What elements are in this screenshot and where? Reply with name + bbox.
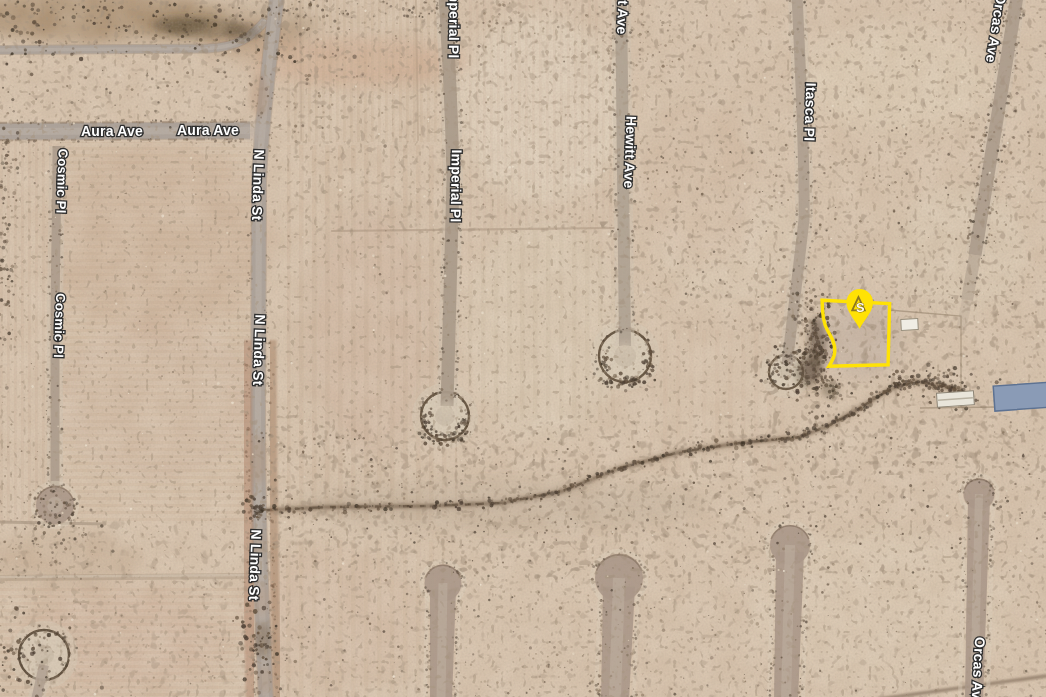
- svg-text:Aura Ave: Aura Ave: [81, 123, 143, 139]
- svg-text:Cosmic Pl: Cosmic Pl: [53, 148, 70, 213]
- svg-text:N Linda St: N Linda St: [250, 314, 268, 386]
- svg-text:Hewitt Ave: Hewitt Ave: [621, 116, 640, 189]
- svg-text:Itasca Pl: Itasca Pl: [801, 82, 819, 141]
- svg-text:Cosmic Pl: Cosmic Pl: [51, 293, 68, 358]
- svg-text:S: S: [856, 300, 865, 315]
- svg-text:Imperial Pl: Imperial Pl: [446, 0, 463, 59]
- svg-text:Imperial Pl: Imperial Pl: [448, 149, 465, 222]
- svg-text:Hewitt Ave: Hewitt Ave: [614, 0, 633, 35]
- svg-text:N Linda St: N Linda St: [246, 529, 264, 601]
- svg-text:N Linda St: N Linda St: [249, 149, 267, 221]
- svg-text:Aura Ave: Aura Ave: [177, 122, 239, 138]
